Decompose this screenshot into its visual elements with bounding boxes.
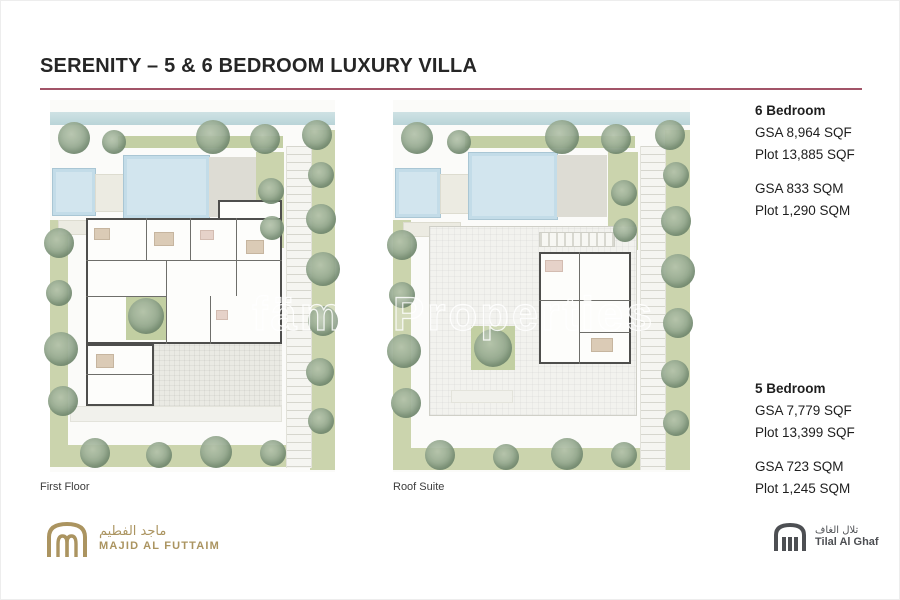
kids-pool [52,168,96,216]
page-title: SERENITY – 5 & 6 BEDROOM LUXURY VILLA [40,55,477,78]
maf-arch-icon [45,520,89,558]
furniture [591,338,613,352]
furniture [96,354,114,368]
furniture [246,240,264,254]
tree-icon [545,120,579,154]
tree-icon [401,122,433,154]
furniture [200,230,214,240]
interior-wall [86,296,166,297]
kids-pool [395,168,441,218]
tree-icon [663,308,693,338]
tree-icon [611,442,637,468]
tree-icon [551,438,583,470]
tree-icon [44,228,74,258]
tree-icon [80,438,110,468]
furniture [154,232,174,246]
floor-plan-roof-suite [393,100,690,472]
tree-icon [46,280,72,306]
tree-icon [306,358,334,386]
tilal-al-ghaf-logo: تلال الغاف Tilal Al Ghaf [773,522,879,552]
tree-icon [611,180,637,206]
tree-icon [391,388,421,418]
tree-icon [128,298,164,334]
spec-line: GSA 8,964 SQF [755,122,900,144]
tree-icon [661,206,691,236]
spec-6-bedroom: 6 Bedroom GSA 8,964 SQF Plot 13,885 SQF … [755,100,900,222]
spec-heading: 5 Bedroom [755,378,900,400]
tag-arabic-name: تلال الغاف [815,525,879,537]
tree-icon [196,120,230,154]
tree-icon [302,120,332,150]
interior-wall [190,218,191,260]
water-canal [50,112,335,125]
spec-line: Plot 1,245 SQM [755,478,900,500]
tree-icon [308,162,334,188]
interior-wall [86,374,154,375]
pergola [539,232,615,247]
tree-icon [44,332,78,366]
patio [154,344,282,406]
spec-5-bedroom: 5 Bedroom GSA 7,779 SQF Plot 13,399 SQF … [755,378,900,500]
interior-wall [236,218,237,296]
title-underline [40,88,862,90]
tree-icon [102,130,126,154]
interior-wall [210,296,211,344]
interior-wall [166,260,167,344]
interior-wall [579,252,580,364]
walkway [70,406,282,422]
spec-line: Plot 13,885 SQF [755,144,900,166]
spec-line: GSA 7,779 SQF [755,400,900,422]
furniture [545,260,563,272]
tree-icon [601,124,631,154]
tree-icon [447,130,471,154]
terrace-paving [557,155,607,217]
tree-icon [260,440,286,466]
pool-deck [95,174,125,212]
spec-line: Plot 13,399 SQF [755,422,900,444]
maf-arabic-name: ماجد الفطيم [99,525,220,540]
tree-icon [613,218,637,242]
majid-al-futtaim-logo: ماجد الفطيم MAJID AL FUTTAIM [45,520,220,558]
tree-icon [663,162,689,188]
tree-icon [474,329,512,367]
tree-icon [425,440,455,470]
tree-icon [306,252,340,286]
tree-icon [493,444,519,470]
tree-icon [661,254,695,288]
spec-line: GSA 833 SQM [755,178,900,200]
tree-icon [387,230,417,260]
tree-icon [655,120,685,150]
tree-icon [308,408,334,434]
furniture [94,228,110,240]
tree-icon [306,204,336,234]
swimming-pool [468,152,558,220]
villa-footprint [86,218,282,344]
floor-plan-first-floor [50,100,335,472]
spacer [755,444,900,456]
tree-icon [308,306,338,336]
interior-wall [539,300,631,301]
water-canal [393,112,690,125]
tree-icon [200,436,232,468]
swimming-pool [123,155,210,219]
tree-icon [258,178,284,204]
tree-icon [250,124,280,154]
tree-icon [389,282,415,308]
tree-icon [387,334,421,368]
spacer [755,166,900,178]
roof-stair [451,390,513,403]
tag-latin-name: Tilal Al Ghaf [815,536,879,549]
interior-wall [146,218,147,260]
tree-icon [58,122,90,154]
spec-line: GSA 723 SQM [755,456,900,478]
interior-wall [579,332,631,333]
pool-deck [440,174,470,214]
tree-icon [661,360,689,388]
tree-icon [663,410,689,436]
tree-icon [260,216,284,240]
furniture [216,310,228,320]
plan-caption-first-floor: First Floor [40,481,90,493]
spec-heading: 6 Bedroom [755,100,900,122]
spec-line: Plot 1,290 SQM [755,200,900,222]
maf-latin-name: MAJID AL FUTTAIM [99,540,220,553]
tree-icon [146,442,172,468]
tag-arch-icon [773,522,807,552]
plan-caption-roof-suite: Roof Suite [393,481,444,493]
interior-wall [86,260,282,261]
tree-icon [48,386,78,416]
